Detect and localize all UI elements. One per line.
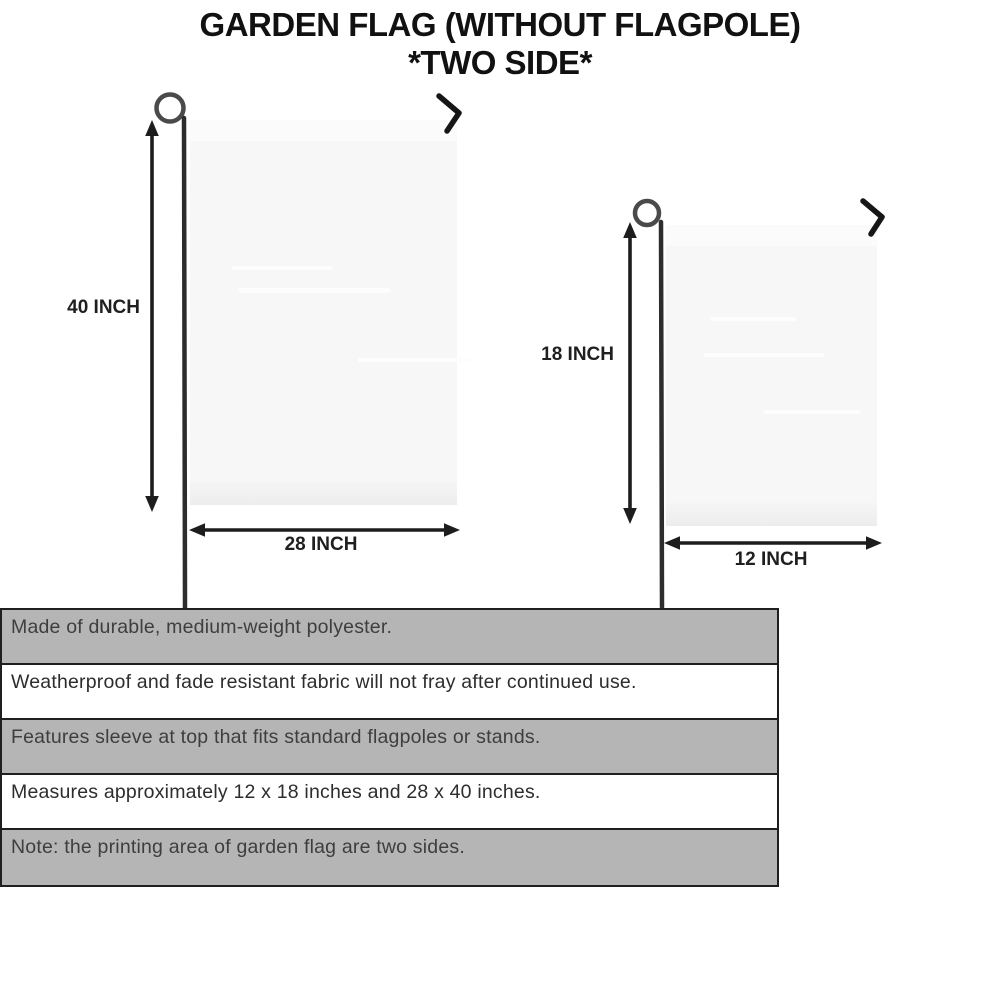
small-flag-width-label: 12 INCH [691, 549, 851, 571]
small-flag [666, 225, 877, 526]
large-flag-width-label: 28 INCH [241, 534, 401, 556]
small-flag-height-label: 18 INCH [524, 344, 614, 366]
fabric-streak [238, 288, 390, 293]
feature-row-sleeve: Features sleeve at top that fits standar… [2, 720, 777, 775]
fabric-streak [704, 353, 824, 357]
small-flag-hem [666, 503, 877, 526]
feature-text: Note: the printing area of garden flag a… [11, 836, 465, 858]
large-flag [190, 120, 457, 505]
feature-text: Made of durable, medium-weight polyester… [11, 616, 392, 638]
feature-row-weatherproof: Weatherproof and fade resistant fabric w… [2, 665, 777, 720]
title-line-1: GARDEN FLAG (WITHOUT FLAGPOLE) [0, 6, 1000, 44]
small-flag-hook-icon [857, 198, 891, 238]
page-title: GARDEN FLAG (WITHOUT FLAGPOLE) *TWO SIDE… [0, 6, 1000, 81]
feature-text: Weatherproof and fade resistant fabric w… [11, 671, 637, 693]
fabric-streak [764, 410, 860, 414]
small-flag-sleeve [666, 225, 877, 246]
feature-row-measures: Measures approximately 12 x 18 inches an… [2, 775, 777, 830]
large-flag-height-arrow [139, 120, 165, 512]
small-flag-height-arrow [617, 222, 643, 524]
garden-flag-infographic: GARDEN FLAG (WITHOUT FLAGPOLE) *TWO SIDE… [0, 0, 1000, 1000]
fabric-streak [232, 266, 332, 270]
feature-row-note: Note: the printing area of garden flag a… [2, 830, 777, 885]
large-flag-sleeve [190, 120, 457, 141]
feature-text: Measures approximately 12 x 18 inches an… [11, 781, 541, 803]
feature-row-polyester: Made of durable, medium-weight polyester… [2, 610, 777, 665]
fabric-streak [358, 358, 476, 362]
large-flag-hem [190, 482, 457, 505]
large-flag-height-label: 40 INCH [52, 297, 140, 319]
feature-text: Features sleeve at top that fits standar… [11, 726, 540, 748]
large-flag-hook-icon [432, 92, 468, 136]
feature-list: Made of durable, medium-weight polyester… [0, 608, 779, 887]
title-line-2: *TWO SIDE* [0, 44, 1000, 81]
fabric-streak [710, 317, 796, 321]
